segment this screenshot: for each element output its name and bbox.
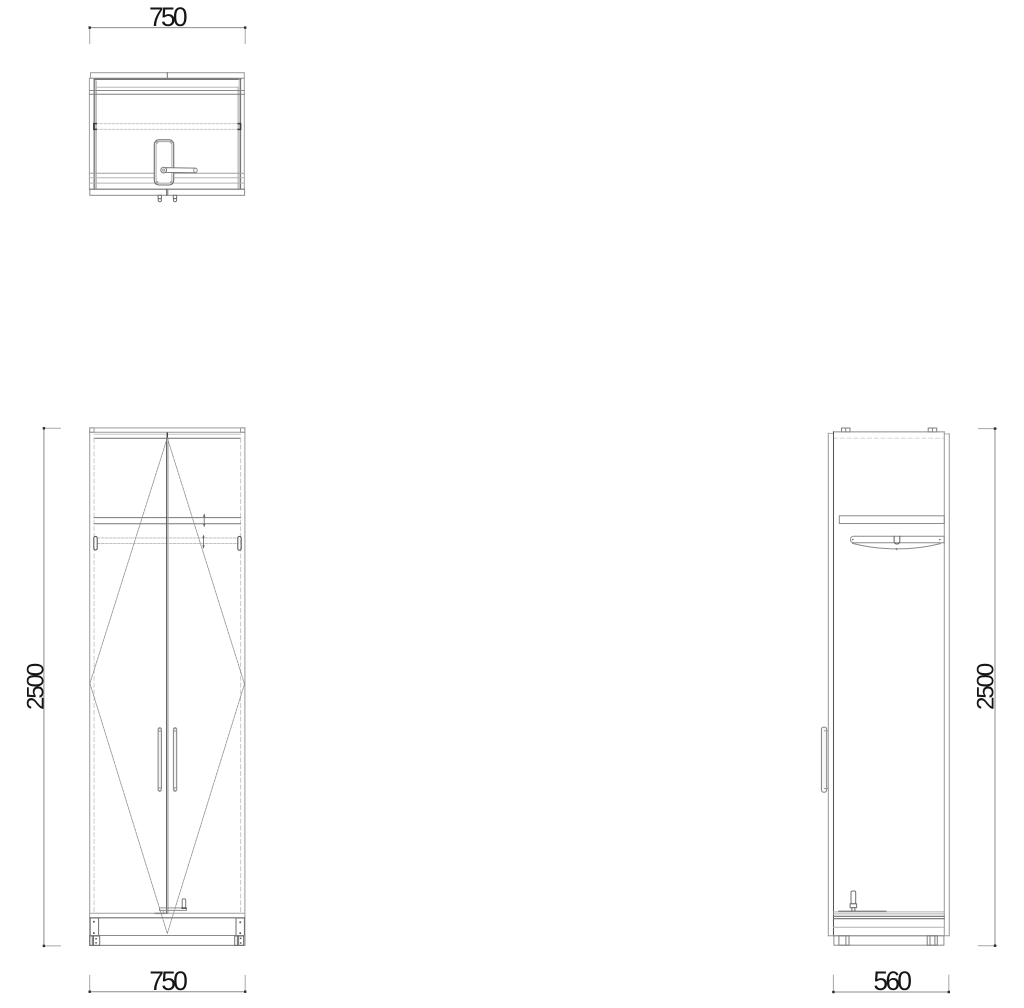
svg-text:2500: 2500 — [972, 663, 999, 710]
svg-text:560: 560 — [873, 966, 911, 996]
svg-text:2500: 2500 — [23, 663, 50, 710]
svg-text:750: 750 — [149, 966, 187, 996]
